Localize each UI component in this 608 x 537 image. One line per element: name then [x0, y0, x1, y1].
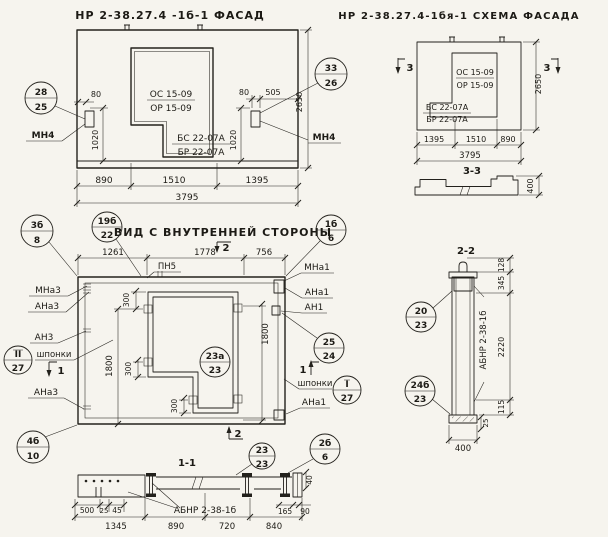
- label-shponki-right: шпонки: [298, 379, 333, 389]
- mark-os: ОС 15-09: [456, 68, 494, 77]
- callout-number: 25: [323, 338, 336, 348]
- mark-br: БР 22-07А: [178, 148, 226, 158]
- dim-label: 1800: [261, 323, 271, 345]
- label-pn5: ПН5: [158, 262, 176, 272]
- section-1-1-title: 1-1: [178, 458, 196, 469]
- mark-bs: БС 22-07А: [426, 103, 469, 112]
- section-2-2-drawing: 2-2 АБНР 2-38-1б 20 23 24б 23 128: [405, 246, 514, 454]
- section-1-1-drawing: 1-1 23 23 2б 6: [72, 434, 340, 532]
- callout-sheet: 6: [328, 234, 334, 244]
- dim-label: 890: [168, 522, 184, 532]
- callout-number: I: [345, 380, 348, 390]
- label-mna3: МНа3: [35, 286, 61, 296]
- dim-label: 840: [266, 522, 282, 532]
- inner-dim-labels: 1261 1778 756 300 300 300 1800 1800: [102, 248, 272, 413]
- dim-label: 3795: [459, 151, 481, 161]
- drawing-canvas: НР 2-38.27.4 -1б-1 ФАСАД: [0, 0, 608, 537]
- section-mark-3-left: 3: [407, 63, 414, 74]
- label-an1: АН1: [305, 303, 324, 313]
- callout-sheet: 24: [323, 352, 336, 362]
- callout-sheet: 27: [12, 364, 25, 374]
- inner-view-drawing: ВИД С ВНУТРЕННЕЙ СТОРОНЫ 2: [4, 212, 361, 463]
- callout-number: 2б: [319, 438, 332, 449]
- callout-number: 23: [256, 446, 269, 456]
- label-ana3-bottom: АНа3: [34, 388, 58, 398]
- dim-label: 165: [278, 507, 293, 516]
- mark-br: БР 22-07А: [426, 115, 468, 124]
- dim-label: 1395: [246, 176, 269, 186]
- dim-label: 128: [497, 258, 506, 273]
- dim-label: 345: [497, 276, 506, 291]
- section-mark-2-top: 2: [223, 243, 230, 254]
- dim-label: 25: [100, 507, 109, 515]
- label-shponki-left: шпонки: [37, 350, 72, 360]
- dim-label: 300: [122, 293, 131, 308]
- label-ana1-bottom: АНа1: [302, 398, 326, 408]
- callout-sheet: 23: [256, 460, 269, 470]
- callout-sheet: 22: [101, 231, 114, 241]
- dim-label: 756: [256, 248, 272, 258]
- dim-label: 890: [95, 176, 112, 186]
- anchor-label-mn4-right: МН4: [313, 133, 336, 143]
- dim-label: 300: [124, 362, 133, 377]
- mark-os: ОС 15-09: [150, 90, 193, 100]
- dim-label: 300: [170, 399, 179, 414]
- callout-sheet: 27: [341, 394, 354, 404]
- section-2-2-dims: 128 345 2220 115 25 400: [432, 255, 514, 454]
- dim-label: 115: [497, 400, 506, 415]
- label-mna1: МНа1: [304, 263, 330, 273]
- callout-number: 24б: [411, 380, 430, 391]
- anchor-label-mn4-left: МН4: [32, 131, 55, 141]
- panel-mark-label: АБНР 2-38-1б: [174, 506, 237, 516]
- dim-label: 400: [455, 444, 471, 454]
- callout-sheet: 10: [27, 452, 40, 462]
- callout-number: 19б: [98, 216, 117, 227]
- dim-label: 1800: [105, 355, 115, 377]
- callout-sheet: 25: [35, 103, 48, 113]
- section-mark-3-right: 3: [544, 63, 551, 74]
- mark-bs: БС 22-07А: [177, 134, 225, 144]
- dim-label: 1020: [229, 130, 238, 150]
- facade-title: НР 2-38.27.4 -1б-1 ФАСАД: [75, 9, 265, 22]
- section-2-2-callouts: 20 23 24б 23: [405, 302, 436, 406]
- label-an3: АН3: [35, 333, 54, 343]
- inner-callouts: 3б 8 19б 22 1б 6 II 27 I 27 25 24 23а 23…: [4, 212, 361, 463]
- callout-number: 23а: [206, 352, 225, 362]
- facade-callout-left: 28 25: [25, 82, 57, 114]
- dim-label: 1020: [91, 130, 100, 150]
- facade-callout-right: 33 26: [315, 58, 347, 90]
- callout-number: 28: [35, 88, 48, 98]
- dim-label: 400: [526, 178, 535, 193]
- dim-label: 25: [482, 419, 490, 428]
- schema-drawing: НР 2-38.27.4-1бя-1 СХЕМА ФАСАДА 3 3 ОС 1…: [338, 10, 579, 198]
- section-mark-1-left: 1: [58, 366, 65, 377]
- label-ana3: АНа3: [35, 302, 59, 312]
- dim-label: 2650: [534, 74, 543, 94]
- dim-label: 3795: [176, 193, 199, 203]
- section-2-2-title: 2-2: [457, 246, 475, 257]
- profile-section-title: 3-3: [463, 166, 481, 177]
- callout-sheet: 6: [322, 453, 328, 463]
- blueprint-sheet: НР 2-38.27.4 -1б-1 ФАСАД: [0, 0, 608, 537]
- mark-or: ОР 15-09: [150, 104, 192, 114]
- schema-title: НР 2-38.27.4-1бя-1 СХЕМА ФАСАДА: [338, 10, 579, 22]
- dim-label: 90: [300, 507, 310, 516]
- dim-label: 45: [112, 506, 122, 515]
- callout-sheet: 26: [325, 79, 338, 89]
- facade-drawing: НР 2-38.27.4 -1б-1 ФАСАД: [25, 9, 347, 207]
- section-1-1-linework: [78, 473, 302, 497]
- inner-view-title: ВИД С ВНУТРЕННЕЙ СТОРОНЫ: [114, 226, 332, 239]
- section-2-2-linework: [449, 262, 477, 423]
- callout-number: 3б: [31, 220, 44, 231]
- inner-dim-lines: [28, 239, 334, 437]
- label-ana1: АНа1: [305, 288, 329, 298]
- callout-number: 33: [325, 64, 338, 74]
- callout-number: 4б: [27, 436, 40, 447]
- dim-label: 80: [239, 88, 249, 97]
- dim-label: 505: [265, 88, 280, 97]
- callout-number: 20: [415, 307, 428, 317]
- dim-label: 890: [500, 135, 515, 144]
- schema-opening-marks: ОС 15-09 ОР 15-09 БС 22-07А БР 22-07А: [426, 68, 494, 124]
- section-mark-2-bottom: 2: [235, 429, 242, 440]
- dim-label: 720: [219, 522, 235, 532]
- panel-mark-label-vertical: АБНР 2-38-1б: [479, 311, 489, 370]
- dim-label: 2220: [497, 337, 506, 357]
- dim-label: 1345: [105, 522, 127, 532]
- callout-number: 1б: [325, 219, 338, 230]
- dim-label: 1778: [194, 248, 216, 258]
- dim-label: 1510: [163, 176, 186, 186]
- callout-sheet: 23: [209, 366, 222, 376]
- mark-or: ОР 15-09: [457, 81, 494, 90]
- dim-label: 2650: [295, 92, 304, 112]
- section-1-1-callouts: 23 23 2б 6: [249, 434, 340, 470]
- section-1-1-dims: АБНР 2-38-1б 500 25 45 1345 890 720 840 …: [72, 459, 314, 532]
- callout-number: II: [15, 350, 22, 360]
- dim-label: 1510: [466, 135, 486, 144]
- dim-label: 1261: [102, 248, 124, 258]
- dim-label: 500: [80, 506, 95, 515]
- callout-sheet: 8: [34, 236, 40, 246]
- callout-sheet: 23: [414, 395, 427, 405]
- schema-dim-labels: 2650 1395 1510 890 3795 400: [424, 74, 543, 194]
- dim-label: 40: [305, 475, 314, 485]
- dim-label: 80: [91, 90, 101, 99]
- section-mark-1-right: 1: [300, 365, 307, 376]
- callout-sheet: 23: [415, 321, 428, 331]
- dim-label: 1395: [424, 135, 444, 144]
